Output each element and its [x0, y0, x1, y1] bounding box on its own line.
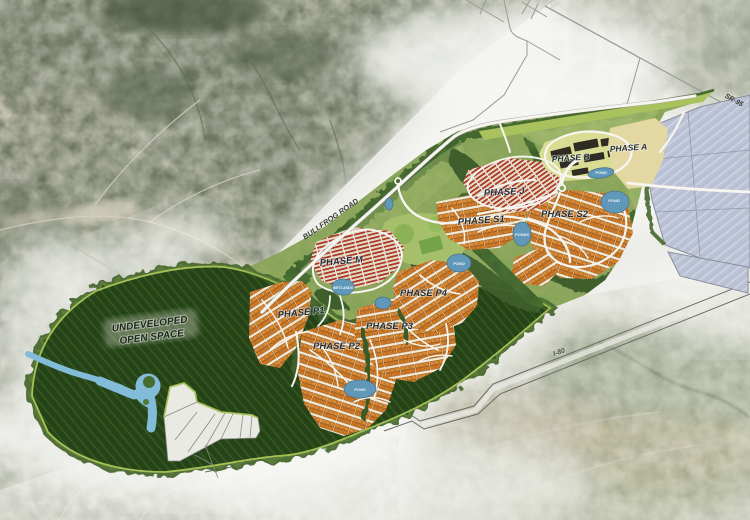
svg-text:PHASE J: PHASE J: [484, 186, 526, 199]
svg-text:PHASE P3: PHASE P3: [366, 321, 414, 332]
svg-text:PHASE P2: PHASE P2: [313, 341, 361, 352]
svg-text:POND: POND: [608, 198, 620, 203]
svg-text:PHASE S2: PHASE S2: [541, 209, 589, 220]
svg-text:WETLANDS: WETLANDS: [333, 286, 354, 290]
svg-text:PHASE P4: PHASE P4: [400, 288, 448, 299]
svg-text:POND: POND: [595, 170, 607, 175]
svg-text:POND: POND: [354, 387, 366, 392]
svg-text:PONDS: PONDS: [515, 232, 530, 237]
svg-text:POND: POND: [453, 261, 465, 266]
